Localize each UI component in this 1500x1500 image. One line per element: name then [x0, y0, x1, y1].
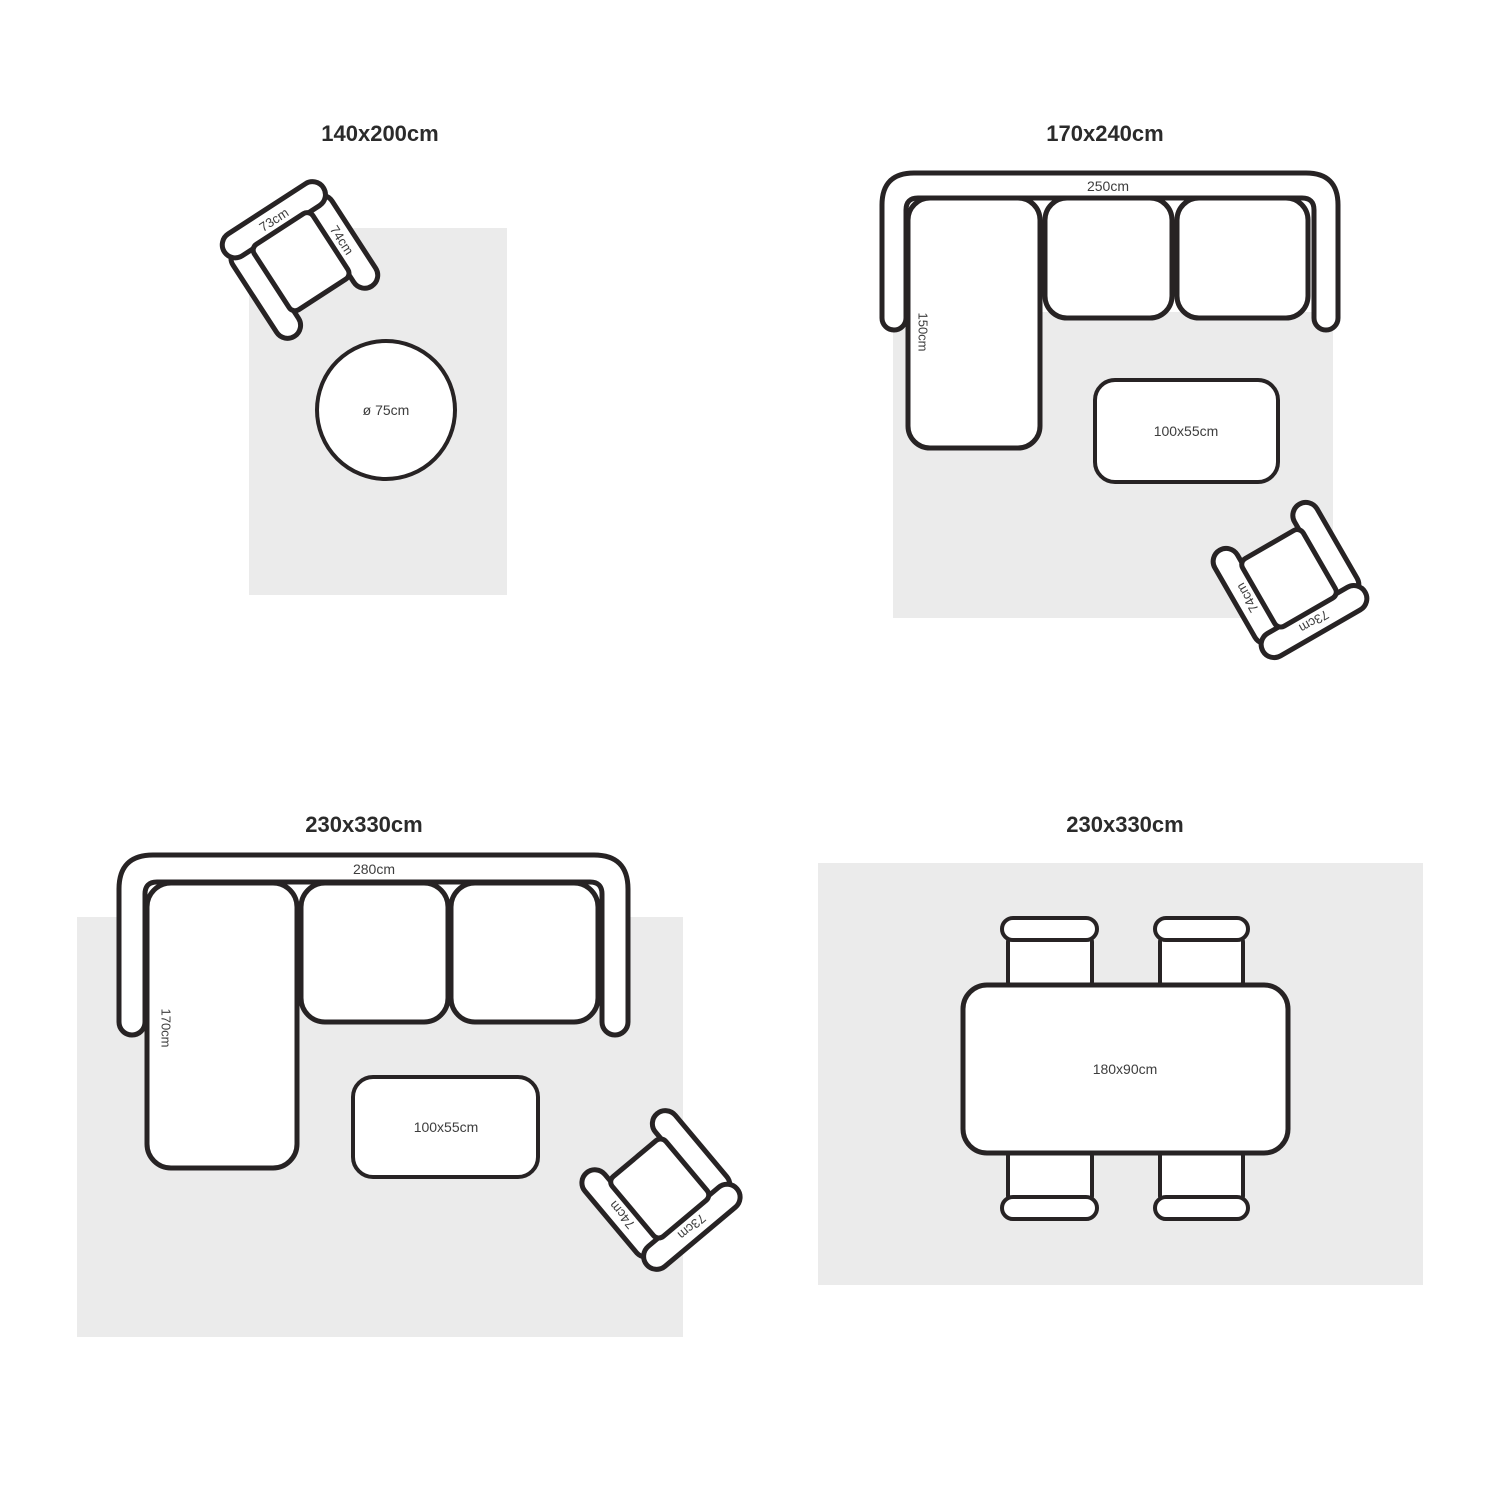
- chair-backrest: [1002, 1197, 1097, 1219]
- sofa-seat-cushion: [1045, 198, 1172, 318]
- chair-backrest: [1155, 1197, 1248, 1219]
- quadrant-230x330-sofa: 280cm 170cm 100x55cm 73cm 74cm: [77, 855, 745, 1337]
- dining-table-dimension: 180x90cm: [1093, 1061, 1158, 1077]
- chair-seat: [1008, 936, 1092, 988]
- quadrant-230x330-dining: 180x90cm: [818, 863, 1423, 1285]
- sofa-chaise-dimension: 170cm: [158, 1008, 173, 1047]
- sofa-seat-cushion: [1177, 198, 1308, 318]
- coffee-table-dimension: 100x55cm: [414, 1119, 479, 1135]
- dining-chair-bottom-right: [1155, 1150, 1248, 1219]
- chair-backrest: [1002, 918, 1097, 940]
- chair-backrest: [1155, 918, 1248, 940]
- chair-seat: [1160, 1150, 1243, 1202]
- dining-chair-bottom-left: [1002, 1150, 1097, 1219]
- quadrant-170x240: 250cm 150cm 100x55cm 73cm 74cm: [882, 173, 1372, 662]
- quadrant-140x200: 73cm 74cm ø 75cm: [217, 177, 507, 595]
- sofa-width-dimension: 280cm: [353, 861, 395, 877]
- dining-chair-top-left: [1002, 918, 1097, 988]
- sofa-width-dimension: 250cm: [1087, 178, 1129, 194]
- sofa-chaise-dimension: 150cm: [915, 312, 930, 351]
- chair-seat: [1008, 1150, 1092, 1202]
- dining-chair-top-right: [1155, 918, 1248, 988]
- round-table-dimension: ø 75cm: [363, 402, 410, 418]
- rug-size-guide: 140x200cm 170x240cm 230x330cm 230x330cm …: [0, 0, 1500, 1500]
- diagram-canvas: 73cm 74cm ø 75cm 250cm 150cm 100x55cm 73…: [0, 0, 1500, 1500]
- sofa-seat-cushion: [301, 883, 448, 1022]
- sofa-seat-cushion: [451, 883, 598, 1022]
- coffee-table-dimension: 100x55cm: [1154, 423, 1219, 439]
- chair-seat: [1160, 936, 1243, 988]
